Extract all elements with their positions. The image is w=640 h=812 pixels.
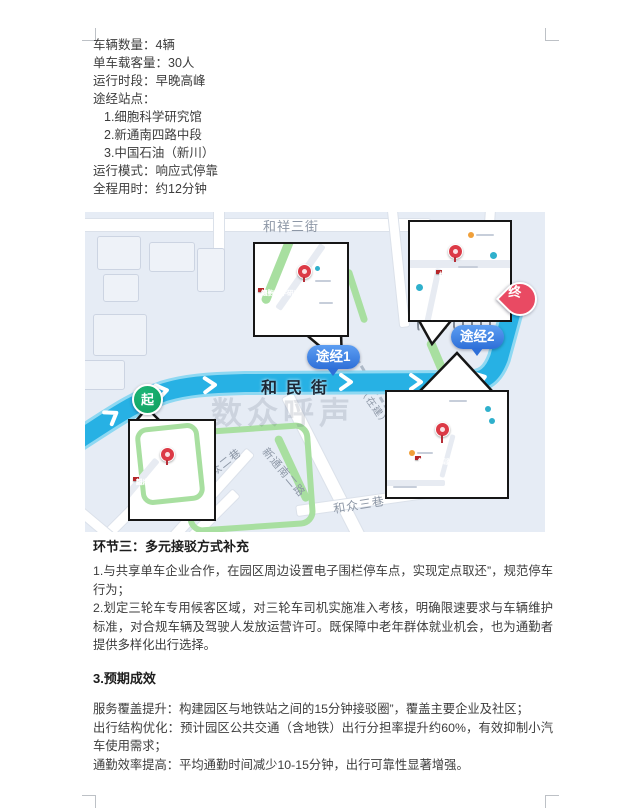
poi-icon <box>468 232 474 238</box>
poi-icon <box>490 252 497 259</box>
waypoint2-marker-tip <box>471 348 483 356</box>
document-page: 车辆数量：4辆 单车载客量：30人 运行时段：早晚高峰 途经站点： 1.细胞科学… <box>0 0 640 812</box>
stop1-label-line2: 细胞科学研究馆 <box>261 290 307 299</box>
crop-mark-bottom-right <box>545 795 559 808</box>
start-label: 起点站： 新川路与和民街路口 <box>133 477 139 481</box>
spec-stop-2: 2.新通南四路中段 <box>93 126 553 144</box>
mini-text-speck <box>319 302 333 304</box>
poi-icon <box>416 284 423 291</box>
waypoint2-marker: 途经2 <box>451 325 504 349</box>
spec-vehicle-count: 车辆数量：4辆 <box>93 36 553 54</box>
stop1-pin-tail <box>303 277 305 282</box>
start-pin-tail <box>166 460 168 465</box>
waypoint1-marker: 途经1 <box>307 345 360 369</box>
crop-mark-bottom-left <box>82 795 96 808</box>
route-spec-list: 车辆数量：4辆 单车载客量：30人 运行时段：早晚高峰 途经站点： 1.细胞科学… <box>93 36 553 198</box>
spec-operating-period: 运行时段：早晚高峰 <box>93 72 553 90</box>
spec-stop-1: 1.细胞科学研究馆 <box>93 108 553 126</box>
callout-terminal: 终点站： 中国石油（新川） <box>408 220 512 322</box>
poi-icon <box>315 266 320 271</box>
section-heading-step3: 环节三：多元接驳方式补充 <box>93 536 551 555</box>
callout-stop2: 第二站： 新通南四路中段 <box>385 390 509 499</box>
section4-paragraphs: 服务覆盖提升：构建园区与地铁站之间的15分钟接驳圈”，覆盖主要企业及社区； 出行… <box>93 700 553 774</box>
paragraph: 通勤效率提高：平均通勤时间减少10-15分钟，出行可靠性显著增强。 <box>93 756 553 775</box>
start-label-line2: 新川路与和民街路口 <box>136 479 195 488</box>
poi-icon <box>489 418 495 424</box>
stop2-label-line2: 新通南四路中段 <box>418 458 467 467</box>
spec-stops-header: 途经站点： <box>93 90 553 108</box>
spec-total-time: 全程用时：约12分钟 <box>93 180 553 198</box>
poi-icon <box>485 406 491 412</box>
paragraph: 服务覆盖提升：构建园区与地铁站之间的15分钟接驳圈”，覆盖主要企业及社区； <box>93 700 553 719</box>
section-heading-outcomes: 3.预期成效 <box>93 668 551 687</box>
terminal-label: 终点站： 中国石油（新川） <box>436 270 442 274</box>
paragraph: 1.与共享单车企业合作，在园区周边设置电子围栏停车点，实现定点取还”，规范停车行… <box>93 562 553 599</box>
section3-paragraphs: 1.与共享单车企业合作，在园区周边设置电子围栏停车点，实现定点取还”，规范停车行… <box>93 562 553 655</box>
spec-operating-mode: 运行模式：响应式停靠 <box>93 162 553 180</box>
terminal-label-line2: 中国石油（新川） <box>439 272 491 281</box>
mini-scale-bar <box>393 486 417 488</box>
terminal-pin-tail <box>454 257 456 262</box>
stop1-label: 第一站： 细胞科学研究馆 <box>258 288 264 292</box>
end-marker-label: 终 <box>508 278 521 306</box>
mini-text-speck <box>315 280 331 282</box>
mini-green-loop <box>134 422 206 506</box>
spec-stop-3: 3.中国石油（新川） <box>93 144 553 162</box>
mini-text-speck <box>476 234 494 236</box>
waypoint1-marker-tip <box>327 368 339 376</box>
stop2-pin-tail <box>441 435 443 443</box>
mini-text-speck <box>449 400 467 402</box>
mini-text-speck <box>417 452 433 454</box>
spec-capacity: 单车载客量：30人 <box>93 54 553 72</box>
stop2-label: 第二站： 新通南四路中段 <box>415 456 421 460</box>
paragraph: 出行结构优化：预计园区公共交通（含地铁）出行分担率提升约60%，有效抑制小汽车使… <box>93 719 553 756</box>
paragraph: 2.划定三轮车专用候客区域，对三轮车司机实施准入考核，明确限速要求与车辆维护标准… <box>93 599 553 655</box>
callout-start: 起点站： 新川路与和民街路口 <box>128 419 216 521</box>
start-marker: 起 <box>132 384 163 415</box>
route-map-image[interactable]: 和祥三街 在建 （在建） 和众二巷 新通南二路 和众三巷 四厚巷 和民街 数众呼… <box>85 212 545 532</box>
mini-text-speck <box>458 266 478 268</box>
callout-stop1: 第一站： 细胞科学研究馆 <box>253 242 349 337</box>
